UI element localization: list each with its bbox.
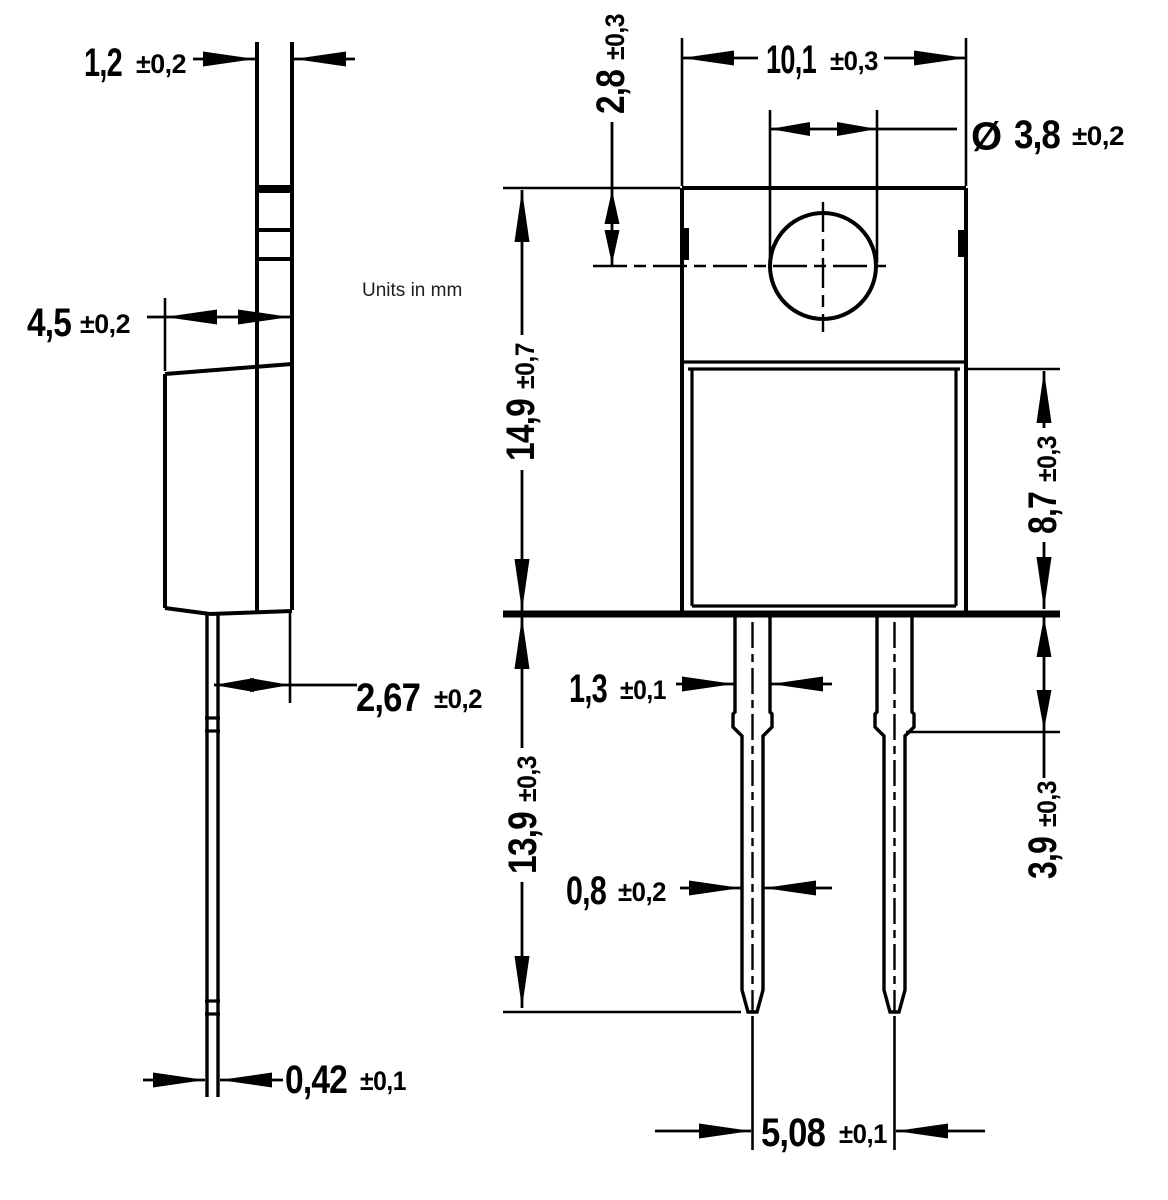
front-notch-right xyxy=(958,230,964,257)
arrow xyxy=(605,230,620,264)
arrow xyxy=(770,122,810,136)
arrow xyxy=(682,51,734,66)
dimension-lines xyxy=(143,51,1052,1139)
drawing-canvas: 1,2 ±0,2 4,5 ±0,2 2,67 ±0,2 0,42 ±0,1 10… xyxy=(0,0,1168,1200)
package-outline-drawing: 1,2 ±0,2 4,5 ±0,2 2,67 ±0,2 0,42 ±0,1 10… xyxy=(0,0,1168,1200)
arrow xyxy=(699,1124,751,1139)
label-lead-thickness-tol: ±0,1 xyxy=(360,1066,406,1096)
arrow xyxy=(165,310,217,325)
arrow xyxy=(238,310,290,325)
label-body-depth: 4,5 xyxy=(27,301,72,345)
label-lead-pitch-tol: ±0,1 xyxy=(839,1119,887,1149)
label-body-height: 8,7±0,3 xyxy=(1021,436,1065,534)
arrow xyxy=(220,1073,272,1088)
label-lead-pitch: 5,08 xyxy=(761,1111,826,1155)
label-lead-thickness: 0,42 xyxy=(285,1058,347,1102)
arrow xyxy=(605,190,620,224)
arrow xyxy=(682,677,734,692)
units-note: Units in mm xyxy=(362,280,462,301)
side-view xyxy=(165,42,294,1097)
label-hole-offset: 2,8±0,3 xyxy=(589,14,633,114)
label-body-width-tol: ±0,3 xyxy=(830,46,878,76)
label-lead-length: 13,9±0,3 xyxy=(501,756,545,874)
dimension-labels: 1,2 ±0,2 4,5 ±0,2 2,67 ±0,2 0,42 ±0,1 10… xyxy=(27,14,1124,1155)
side-body-bottom-edge-2 xyxy=(210,611,292,614)
arrow xyxy=(515,190,530,242)
label-lead-shoulder: 3,9±0,3 xyxy=(1021,781,1065,879)
arrow xyxy=(203,52,255,67)
arrow xyxy=(689,881,741,896)
label-hole-diameter: 3,8 xyxy=(1014,113,1061,157)
arrow xyxy=(764,881,816,896)
label-lead-width-narrow-tol: ±0,2 xyxy=(618,877,666,907)
arrow xyxy=(153,1073,205,1088)
arrow xyxy=(1037,371,1052,423)
side-tab-top-band xyxy=(255,185,294,193)
label-lead-setback: 2,67 xyxy=(356,676,420,720)
arrow xyxy=(771,677,823,692)
arrow xyxy=(214,678,254,692)
arrow xyxy=(837,122,877,136)
label-lead-width-narrow: 0,8 xyxy=(566,869,607,913)
arrow xyxy=(1037,690,1052,730)
label-lead-setback-tol: ±0,2 xyxy=(434,684,482,714)
label-overall-height: 14,9±0,7 xyxy=(499,343,543,461)
arrow xyxy=(896,1124,948,1139)
label-tab-thickness-tol: ±0,2 xyxy=(136,49,186,79)
arrow xyxy=(294,52,346,67)
arrow xyxy=(250,678,290,692)
arrow xyxy=(1037,617,1052,657)
side-body-bottom-edge xyxy=(165,608,210,614)
label-body-width: 10,1 xyxy=(766,38,817,82)
label-lead-width-wide: 1,3 xyxy=(569,667,607,711)
arrow xyxy=(515,559,530,611)
arrow xyxy=(515,617,530,669)
label-tab-thickness: 1,2 xyxy=(84,41,122,85)
arrow xyxy=(1037,557,1052,609)
label-hole-diameter-tol: ±0,2 xyxy=(1072,121,1124,151)
arrow xyxy=(914,51,966,66)
label-hole-diameter-symbol: Ø xyxy=(971,115,1002,159)
label-body-depth-tol: ±0,2 xyxy=(80,309,130,339)
label-lead-width-wide-tol: ±0,1 xyxy=(620,675,666,705)
side-body-top-edge xyxy=(165,364,292,374)
front-notch-left xyxy=(683,228,689,260)
arrow xyxy=(515,956,530,1008)
